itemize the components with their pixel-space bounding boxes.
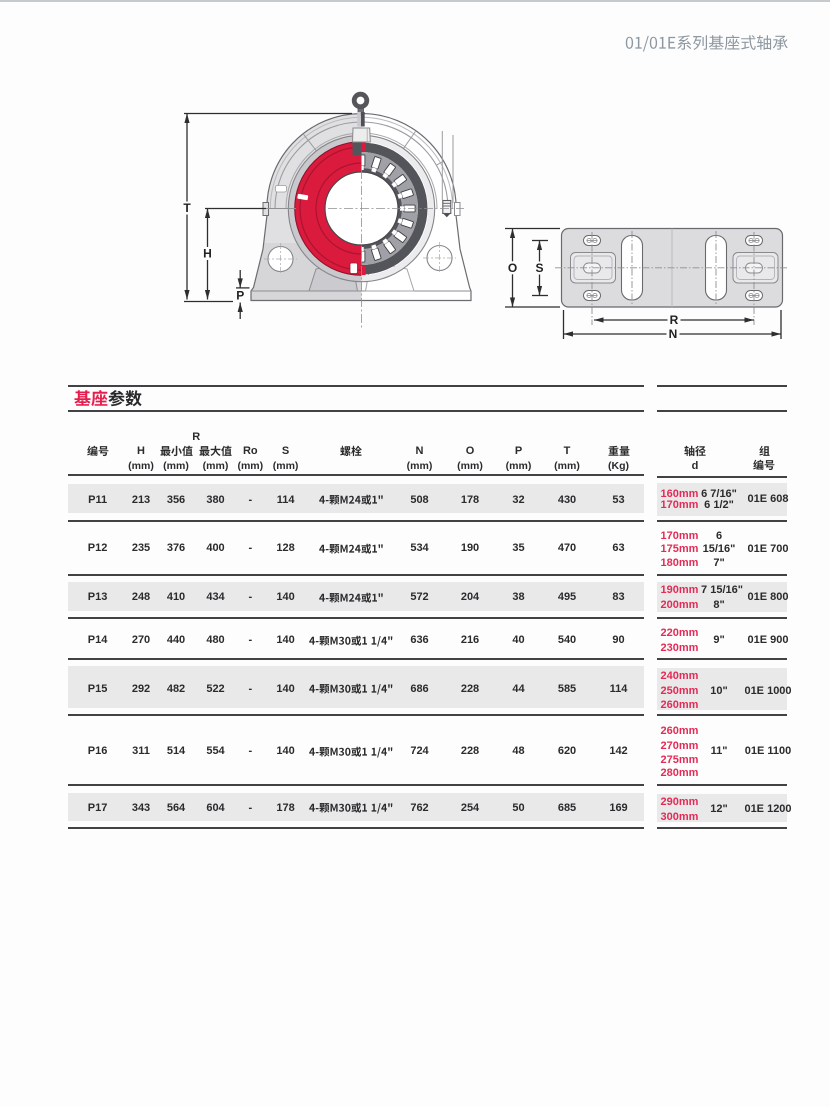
svg-text:N: N — [669, 327, 678, 341]
svg-text:S: S — [535, 261, 543, 275]
svg-text:H: H — [203, 247, 212, 261]
svg-text:P: P — [236, 289, 244, 303]
svg-text:O: O — [508, 261, 517, 275]
svg-text:T: T — [183, 201, 191, 215]
svg-text:R: R — [670, 313, 679, 327]
